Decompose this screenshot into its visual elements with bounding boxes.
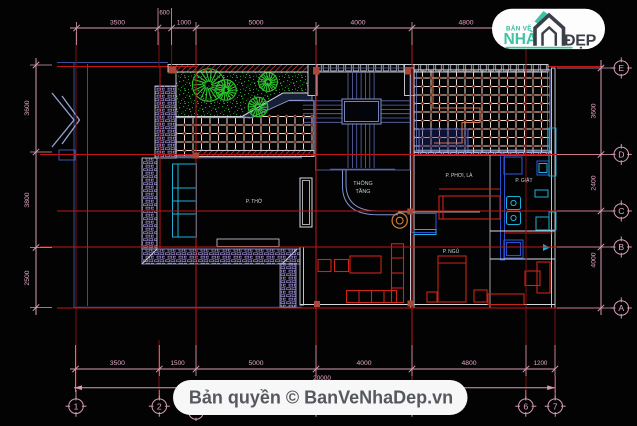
svg-text:1200: 1200 (534, 360, 548, 367)
svg-text:3800: 3800 (24, 192, 31, 207)
svg-text:P. PHƠI, LÀ: P. PHƠI, LÀ (446, 172, 474, 179)
svg-text:P. THỜ: P. THỜ (246, 198, 263, 205)
svg-text:4800: 4800 (461, 360, 476, 367)
svg-text:C: C (618, 206, 624, 216)
svg-text:E: E (618, 63, 624, 73)
svg-text:1500: 1500 (170, 360, 185, 367)
svg-text:TẦNG: TẦNG (356, 188, 371, 195)
svg-text:Bản quyền © BanVeNhaDep.vn: Bản quyền © BanVeNhaDep.vn (189, 388, 453, 408)
svg-text:D: D (618, 149, 624, 159)
svg-text:3600: 3600 (591, 103, 598, 118)
svg-text:NHÀ: NHÀ (504, 31, 538, 48)
svg-text:7: 7 (553, 401, 558, 411)
svg-text:3500: 3500 (110, 360, 125, 367)
svg-text:600: 600 (159, 10, 170, 17)
svg-text:2400: 2400 (591, 175, 598, 190)
svg-text:1000: 1000 (177, 20, 192, 27)
svg-text:4000: 4000 (591, 252, 598, 267)
svg-text:THÔNG: THÔNG (353, 180, 372, 187)
svg-text:3500: 3500 (110, 20, 125, 27)
svg-text:P. GIẶT: P. GIẶT (515, 177, 532, 184)
svg-text:5000: 5000 (248, 360, 263, 367)
svg-text:1: 1 (74, 401, 79, 411)
svg-text:2: 2 (157, 401, 162, 411)
svg-text:3600: 3600 (24, 100, 31, 115)
svg-text:4000: 4000 (356, 360, 371, 367)
svg-text:2500: 2500 (24, 270, 31, 285)
svg-text:B: B (618, 242, 624, 252)
svg-text:A: A (618, 303, 624, 313)
svg-text:6: 6 (523, 401, 528, 411)
svg-text:4800: 4800 (458, 20, 473, 27)
svg-text:4000: 4000 (350, 20, 365, 27)
svg-text:P. NGỦ: P. NGỦ (443, 248, 460, 255)
svg-text:5000: 5000 (248, 20, 263, 27)
